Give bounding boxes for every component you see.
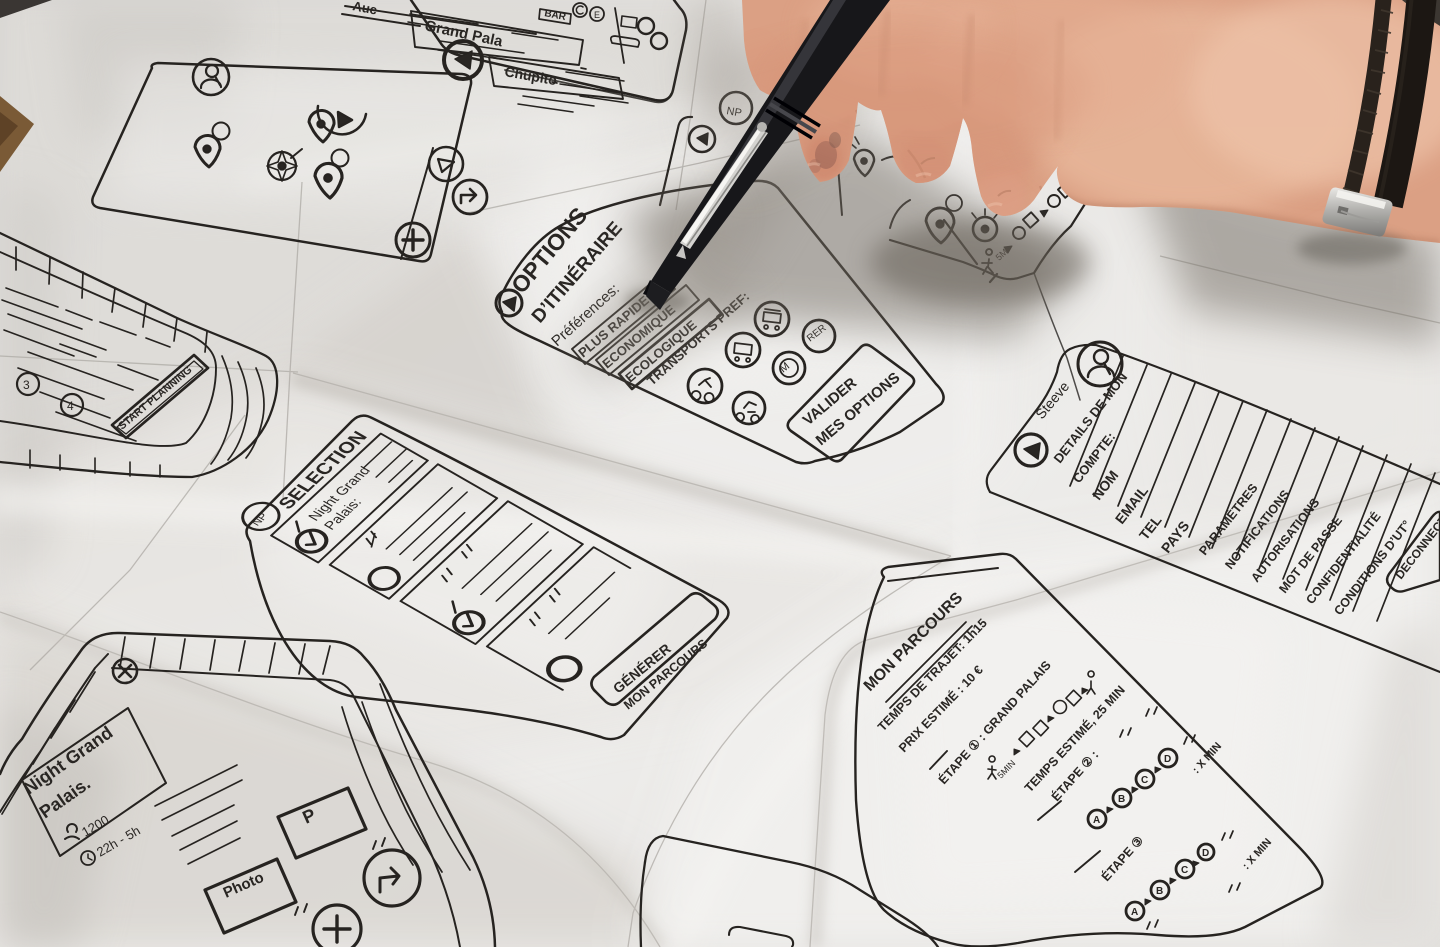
svg-text:D: D	[1202, 848, 1209, 859]
svg-text:E: E	[594, 10, 600, 20]
svg-text:C: C	[1141, 775, 1148, 786]
svg-text:B: B	[1156, 886, 1163, 897]
svg-text:B: B	[1118, 794, 1125, 805]
svg-text:C: C	[1181, 865, 1188, 876]
svg-text:4: 4	[67, 399, 74, 413]
svg-text:A: A	[1131, 907, 1138, 918]
svg-text:D: D	[1164, 754, 1171, 765]
svg-text:A: A	[1093, 815, 1100, 826]
svg-text:3: 3	[23, 378, 30, 392]
